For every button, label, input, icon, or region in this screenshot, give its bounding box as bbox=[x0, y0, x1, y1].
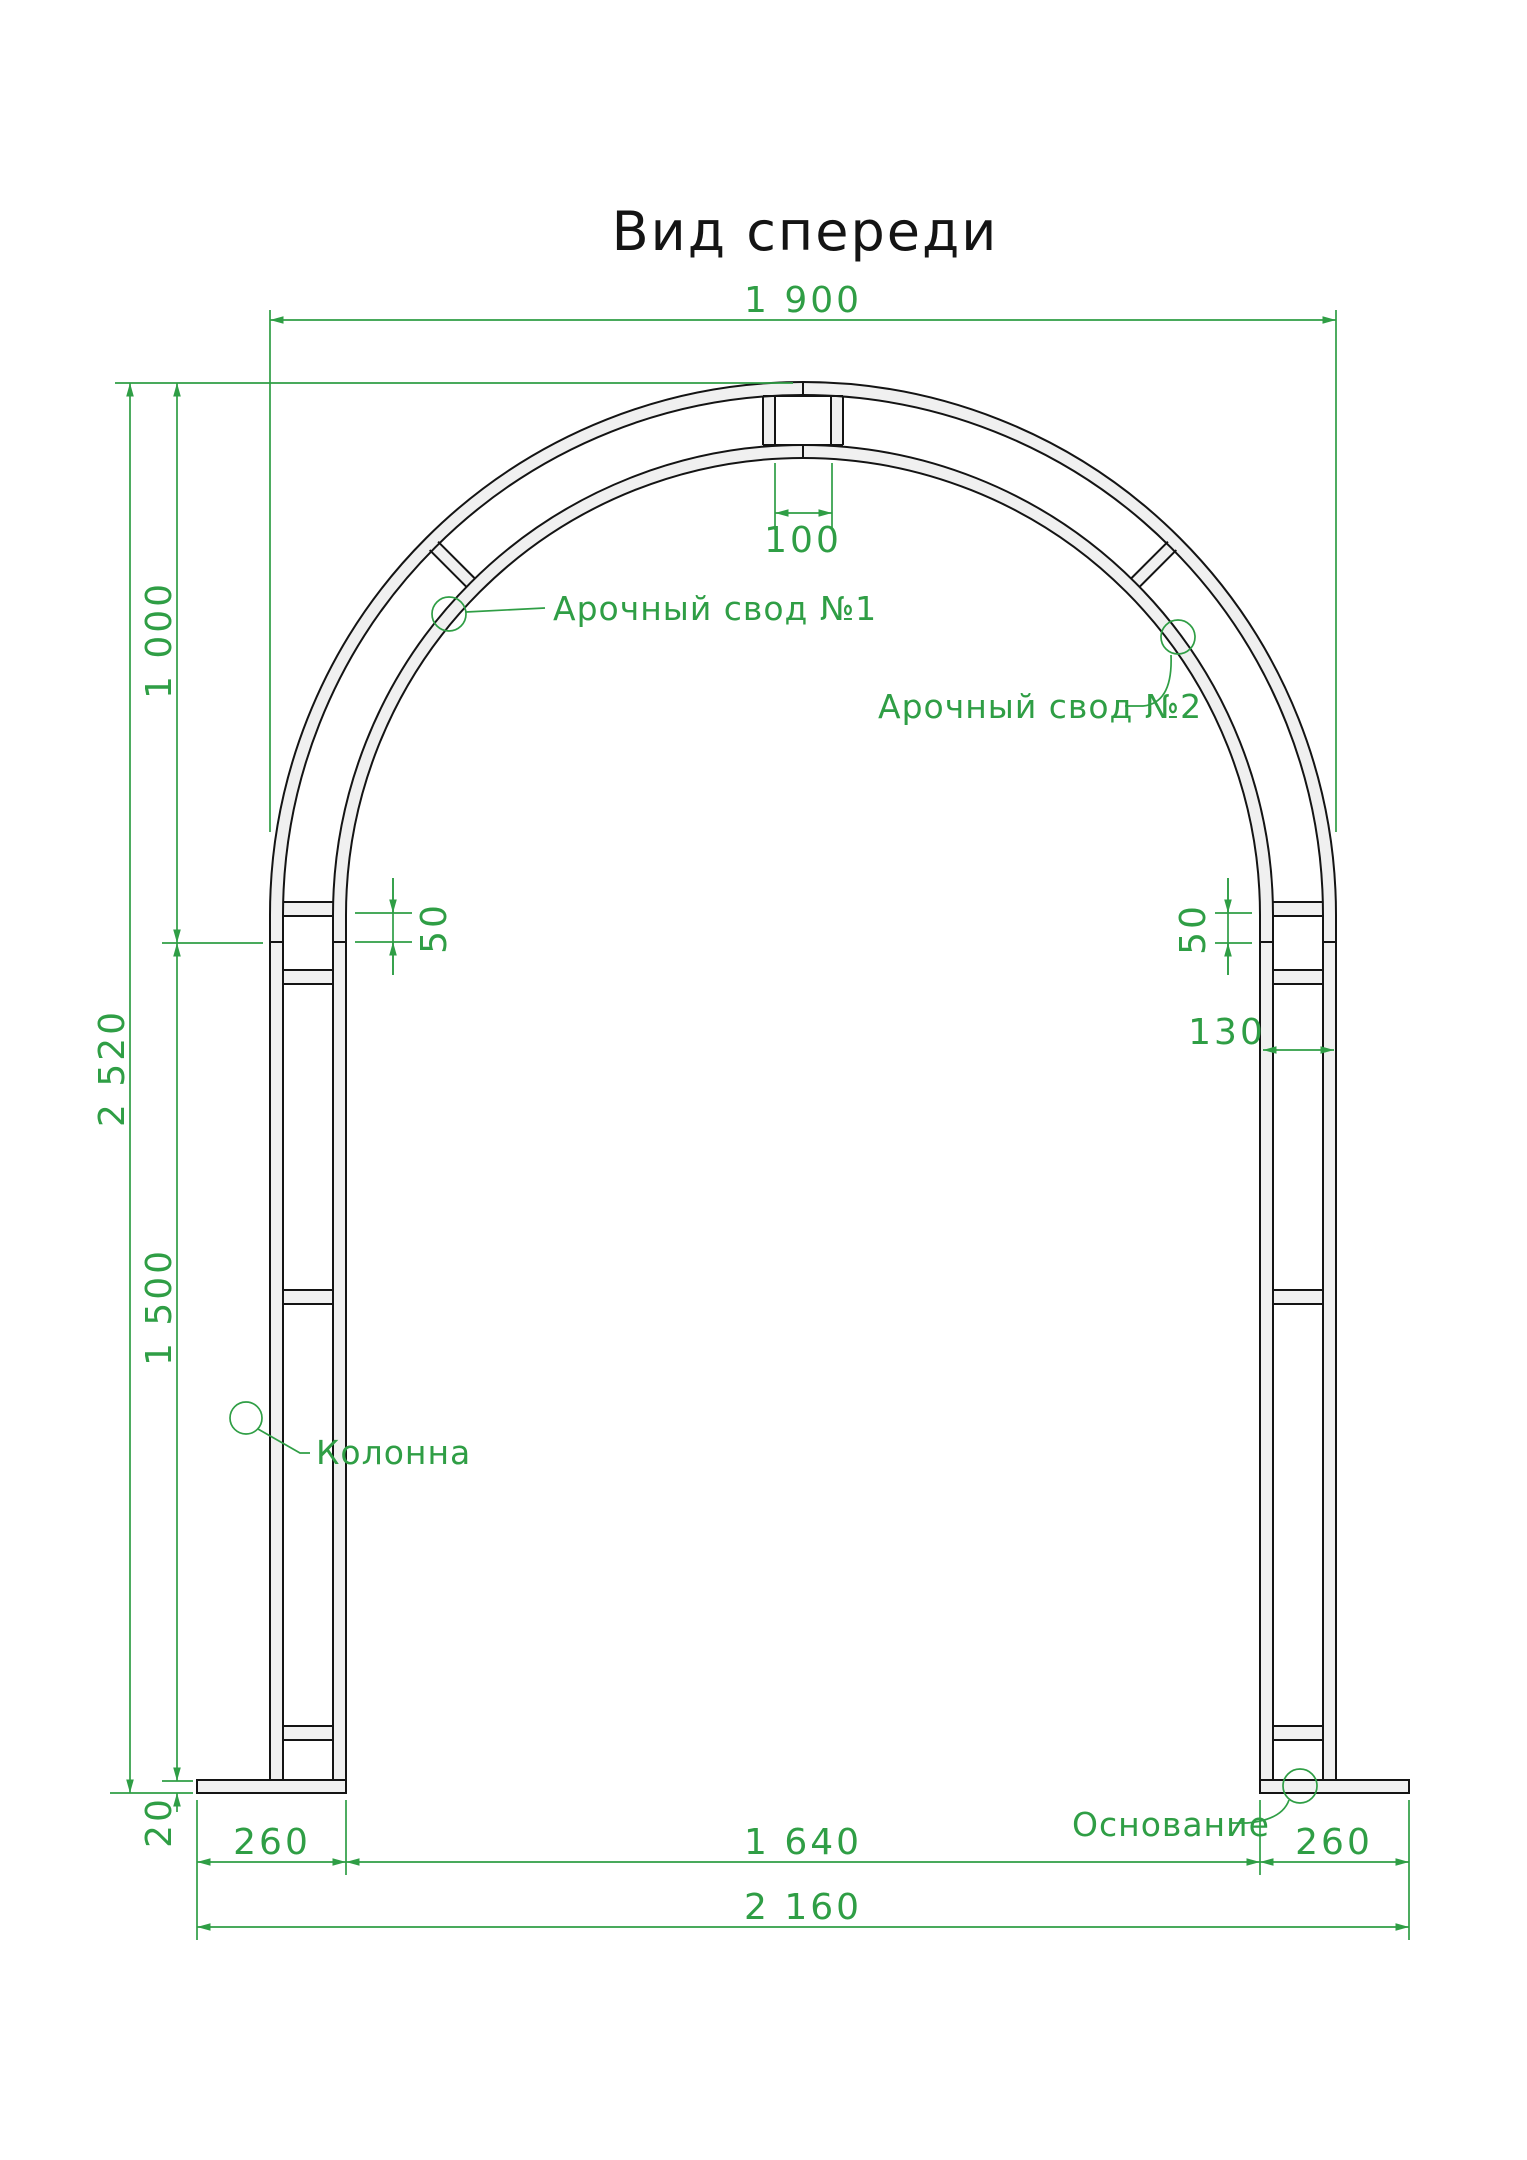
callout-column: Колонна bbox=[230, 1402, 471, 1472]
dim-base-thickness: 20 bbox=[139, 1793, 180, 1848]
inner-vault-outer-edge bbox=[333, 445, 1273, 915]
dimension-value: 100 bbox=[764, 520, 842, 561]
apex-strut-right-fill bbox=[831, 396, 843, 445]
dim-column-width: 130 bbox=[1188, 1012, 1334, 1053]
part-label: Колонна bbox=[316, 1433, 471, 1472]
dimension-value: 260 bbox=[1295, 1822, 1373, 1863]
left-base-plate bbox=[197, 1780, 346, 1793]
apex-strut-edges bbox=[763, 396, 843, 445]
drawing-title: Вид спереди bbox=[612, 200, 999, 263]
dimensions: 1 900 2 520 1 000 1 500 20 bbox=[92, 280, 1409, 1940]
inner-vault-fill bbox=[333, 445, 1273, 915]
left-radial-brace-fill bbox=[430, 542, 475, 587]
left-column-braces-fill bbox=[283, 902, 333, 1740]
leader-line bbox=[466, 608, 545, 612]
dim-base-left: 260 bbox=[197, 1822, 346, 1863]
dimension-value: 260 bbox=[233, 1822, 311, 1863]
right-column-brace-edges bbox=[1273, 902, 1323, 1740]
callout-vault-2: Арочный свод №2 bbox=[878, 620, 1202, 726]
callout-vault-1: Арочный свод №1 bbox=[432, 589, 877, 631]
left-column-outer-tube-fill bbox=[270, 915, 283, 1780]
right-radial-brace-fill bbox=[1131, 542, 1176, 587]
dimension-value: 130 bbox=[1188, 1012, 1266, 1053]
callout-circle bbox=[230, 1402, 262, 1434]
dimension-value: 1 000 bbox=[139, 581, 180, 699]
dimension-value: 20 bbox=[139, 1796, 180, 1848]
dimension-value: 2 160 bbox=[744, 1887, 862, 1928]
outer-vault-inner-edge bbox=[283, 395, 1323, 915]
part-label: Арочный свод №2 bbox=[878, 687, 1202, 726]
front-view-drawing: Вид спереди bbox=[0, 0, 1527, 2160]
dim-joint-offset-right: 50 bbox=[1173, 878, 1252, 975]
left-column-inner-tube-fill bbox=[333, 915, 346, 1780]
apex-strut-left-fill bbox=[763, 396, 775, 445]
dimension-value: 2 520 bbox=[92, 1009, 133, 1127]
dim-arch-height: 1 000 bbox=[139, 383, 263, 943]
dimension-value: 1 640 bbox=[744, 1822, 862, 1863]
left-column-brace-edges bbox=[283, 902, 333, 1740]
part-label: Основание bbox=[1072, 1805, 1270, 1844]
dim-overall-width: 2 160 bbox=[197, 1887, 1409, 1928]
right-column-braces-fill bbox=[1273, 902, 1323, 1740]
right-column-outer-tube-fill bbox=[1323, 915, 1336, 1780]
dim-joint-offset-left: 50 bbox=[355, 878, 455, 975]
part-label: Арочный свод №1 bbox=[553, 589, 877, 628]
dimension-value: 1 900 bbox=[744, 280, 862, 321]
dim-base-right: 260 bbox=[1260, 1822, 1409, 1863]
dimension-value: 1 500 bbox=[139, 1248, 180, 1366]
part-labels: Арочный свод №1 Арочный свод №2 Колонна … bbox=[230, 589, 1317, 1844]
dim-apex-opening: 100 bbox=[764, 463, 842, 561]
dim-column-height: 1 500 bbox=[139, 943, 193, 1781]
dimension-value: 50 bbox=[414, 902, 455, 954]
dimension-value: 50 bbox=[1173, 903, 1214, 955]
